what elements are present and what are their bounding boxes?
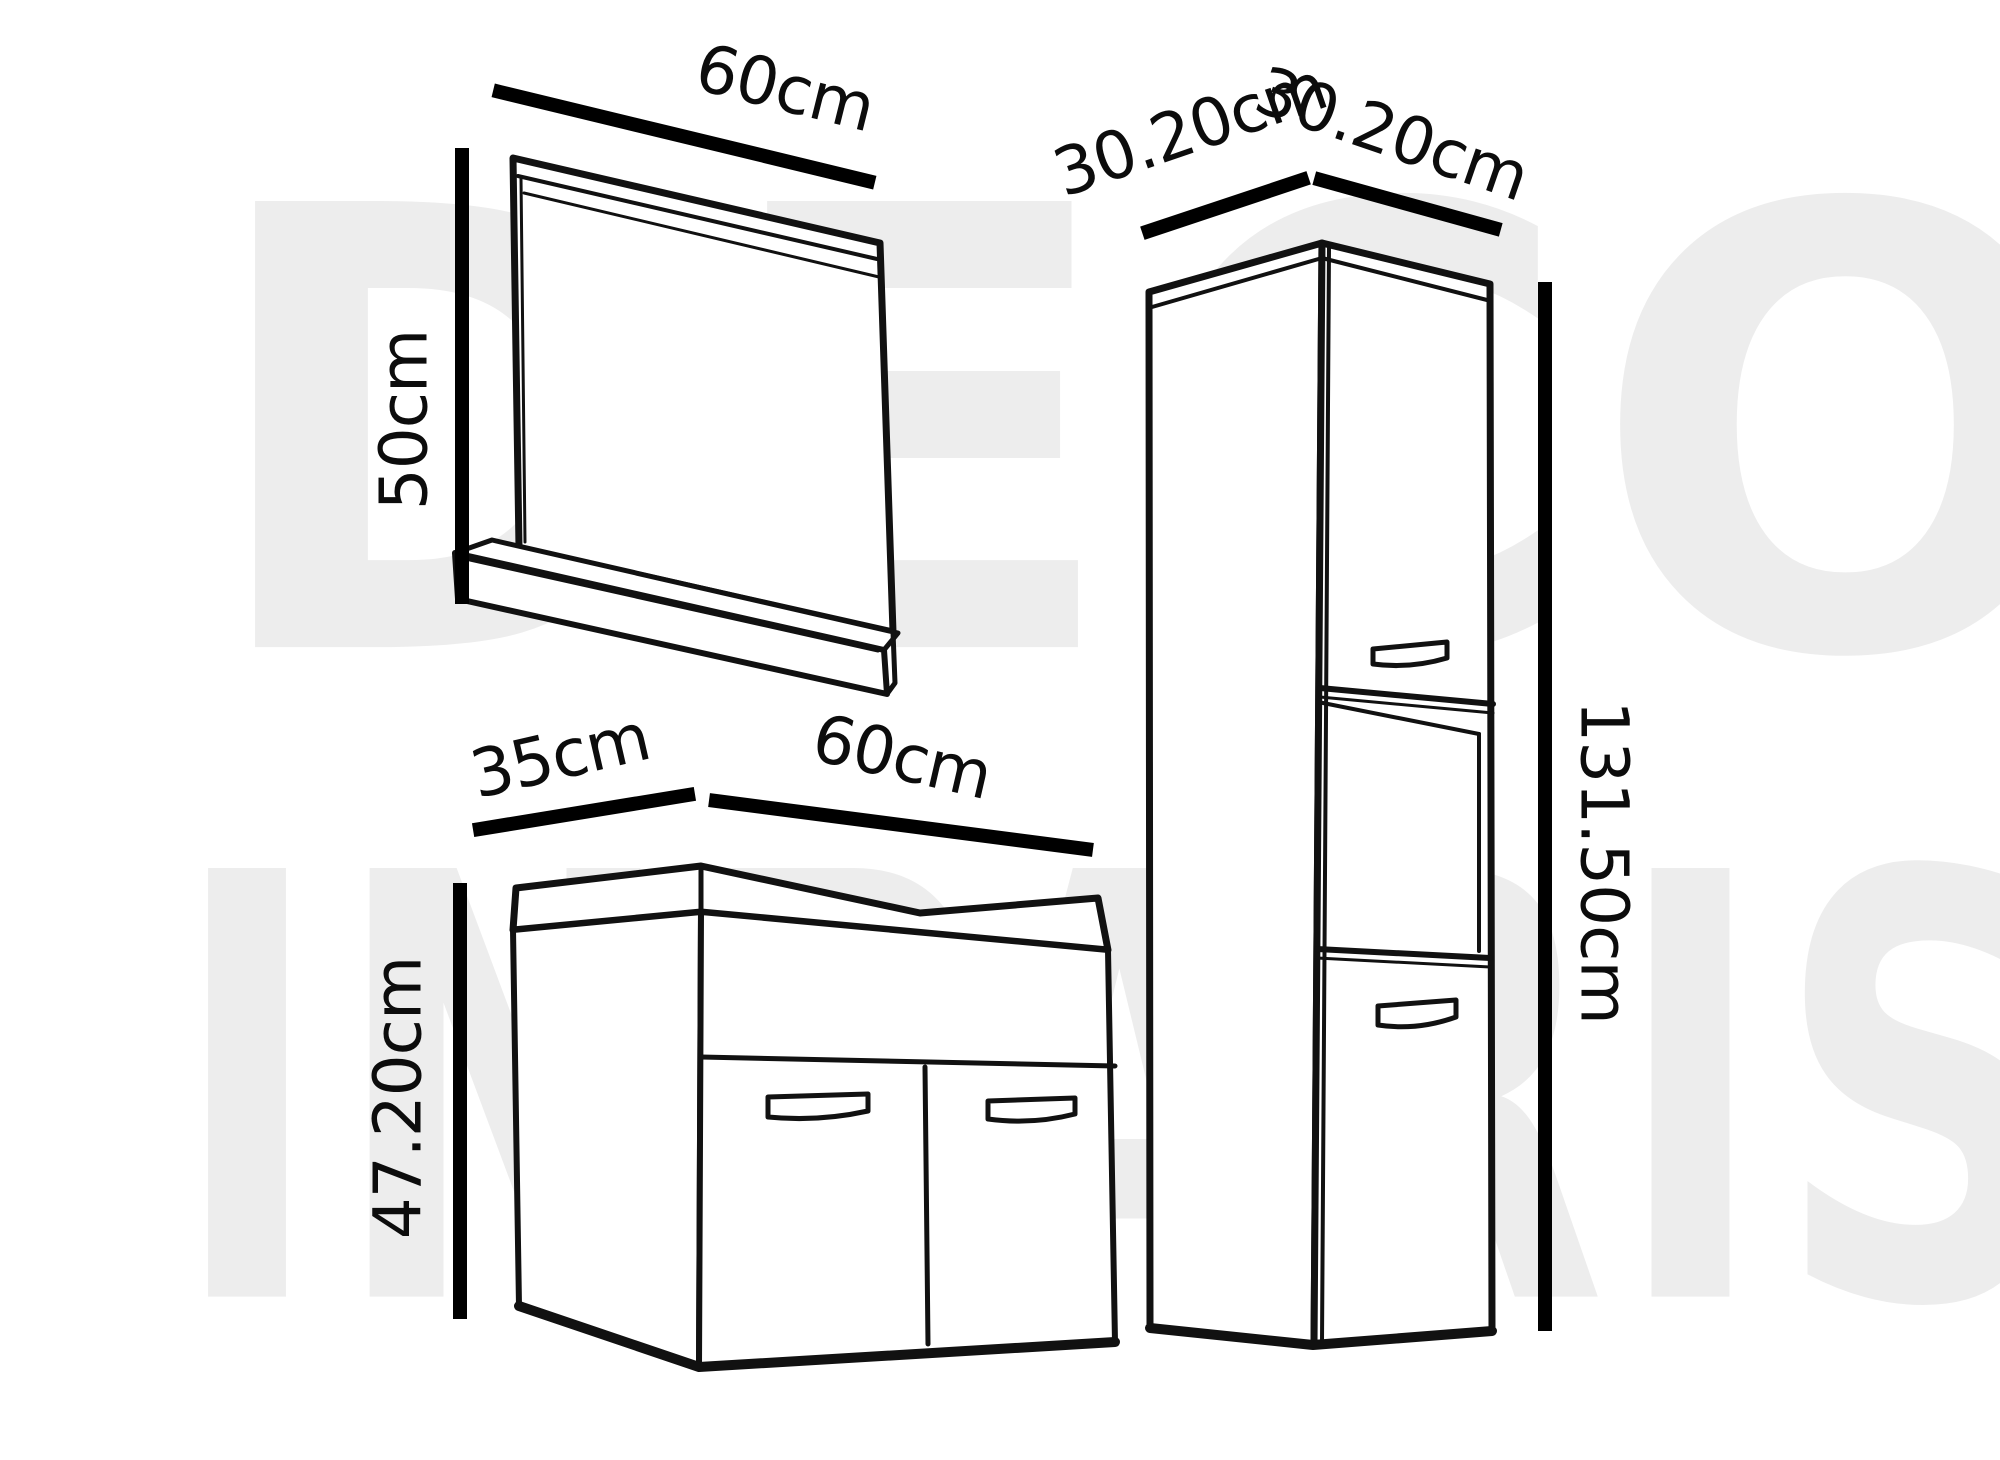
vanity-width-line bbox=[716, 801, 1086, 849]
cabinet-height-label: 131.50cm bbox=[1566, 700, 1643, 1024]
vanity-height-label: 47.20cm bbox=[360, 957, 437, 1240]
tall-cabinet-drawing bbox=[1149, 243, 1493, 1345]
mirror-height-label: 50cm bbox=[366, 330, 443, 511]
diagram-canvas: DECO INPARIS bbox=[0, 0, 2000, 1460]
cabinet-depth-line bbox=[1149, 180, 1302, 231]
vanity-drawing bbox=[513, 866, 1115, 1367]
mirror-drawing bbox=[455, 158, 898, 694]
furniture-line-art bbox=[0, 0, 2000, 1460]
